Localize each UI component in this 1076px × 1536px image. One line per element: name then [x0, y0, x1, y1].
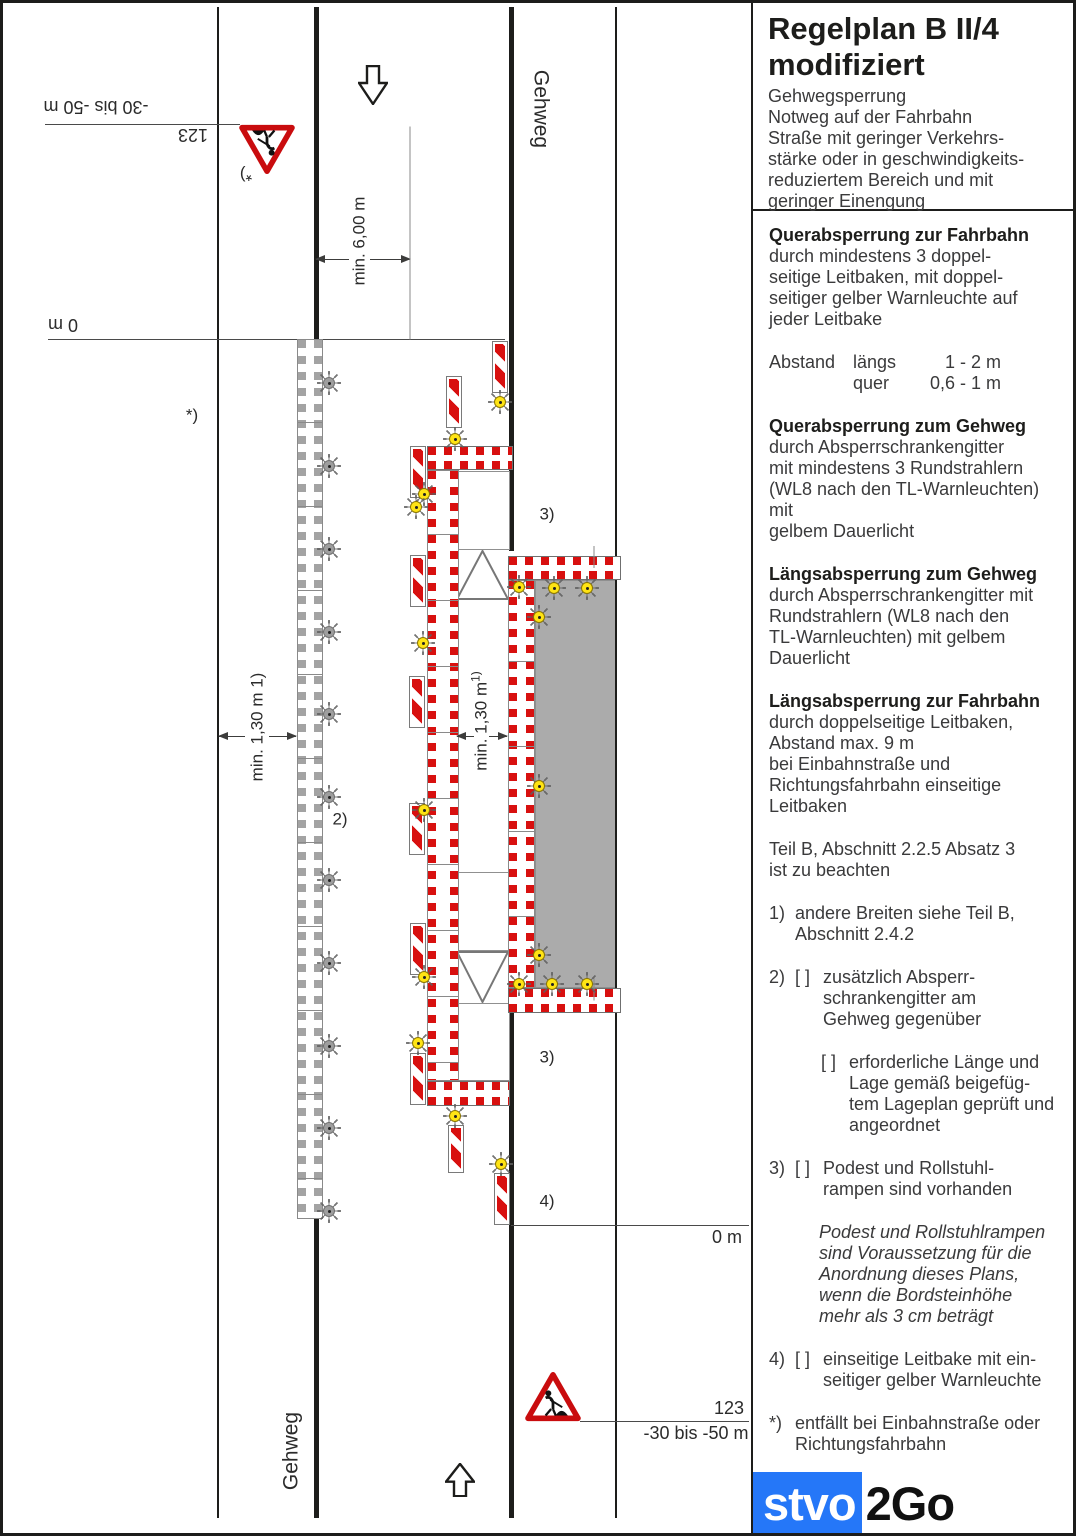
light-disc: [323, 377, 335, 389]
note-section: Querabsperrung zur Fahrbahndurch mindest…: [769, 225, 1067, 330]
warning-light-gray-icon: [317, 537, 341, 561]
curb-left-lower-line: [314, 1219, 319, 1518]
leitbake: [492, 341, 508, 393]
regelplan-page: -30 bis -50 m123*)0 m*)min. 6,00 mmin. 1…: [0, 0, 1076, 1536]
curb-left-upper-line: [314, 7, 319, 340]
light-disc: [323, 1122, 335, 1134]
approach-dim-line-top: [45, 124, 240, 125]
light-disc: [323, 1205, 335, 1217]
ladder-segment-divider: [298, 506, 322, 507]
ladder-segment-divider: [298, 1094, 322, 1095]
checkbox-brackets: [ ]: [795, 1158, 823, 1200]
ladder-segment-divider: [298, 1010, 322, 1011]
footnote-3-label-bottom: 3): [539, 1049, 554, 1066]
warning-light-gray-icon: [317, 454, 341, 478]
warning-light-yellow-icon: [527, 605, 551, 629]
construction-work-sign-123: [525, 1372, 581, 1422]
road-width-dim-label: min. 6,00 m: [351, 197, 368, 286]
text-line: mehr als 3 cm beträgt: [819, 1306, 1067, 1327]
barrier-rail: [298, 340, 306, 1218]
ladder-segment-divider: [428, 996, 458, 997]
distance-table-cell: längs: [853, 352, 915, 373]
light-disc: [581, 582, 593, 594]
text-line: seitiger gelber Warnleuchte auf: [769, 288, 1067, 309]
text-line: (WL8 nach den TL-Warnleuchten) mit: [769, 479, 1067, 521]
text-line: Leitbaken: [769, 796, 1067, 817]
ramp-cell-bottom: [455, 1003, 510, 1081]
text-line: Lage gemäß beigefüg-: [849, 1073, 1054, 1094]
light-disc: [548, 582, 560, 594]
text-line: angeordnet: [849, 1115, 1054, 1136]
light-disc: [323, 874, 335, 886]
text-line: durch doppelseitige Leitbaken,: [769, 712, 1067, 733]
light-disc: [449, 1110, 461, 1122]
section-heading: Querabsperrung zum Gehweg: [769, 416, 1067, 437]
item-text: einseitige Leitbake mit ein-seitiger gel…: [823, 1349, 1041, 1391]
notweg-dim-outer-left: [219, 736, 245, 737]
note-section: 2)[ ]zusätzlich Absperr-schrankengitter …: [769, 967, 1067, 1030]
road-width-dim-left: [316, 259, 349, 260]
warning-light-yellow-icon: [507, 575, 531, 599]
warning-light-yellow-icon: [527, 943, 551, 967]
leitbake-stripes: [413, 558, 423, 604]
sign-number-label-top: 123: [178, 126, 208, 144]
longitudinal-barrier-roadside: [427, 470, 459, 1081]
light-disc: [412, 1037, 424, 1049]
distance-table-cell: [769, 373, 853, 394]
road-edge-right-line: [615, 7, 617, 1518]
light-disc: [323, 543, 335, 555]
station-zero-line-top: [48, 339, 505, 340]
subtitle: GehwegsperrungNotweg auf der FahrbahnStr…: [768, 86, 1063, 212]
text-line: Richtungsfahrbahn einseitige: [769, 775, 1067, 796]
notweg-dim-inner-right: [489, 736, 507, 737]
item-text: andere Breiten siehe Teil B,Abschnitt 2.…: [795, 903, 1015, 945]
warning-light-gray-icon: [317, 951, 341, 975]
subtitle-line: Gehwegsperrung: [768, 86, 1063, 107]
warning-light-yellow-icon: [443, 427, 467, 451]
ladder-segment-divider: [509, 746, 534, 747]
warning-light-yellow-icon: [575, 576, 599, 600]
text-line: TL-Warnleuchten) mit gelbem: [769, 627, 1067, 648]
light-disc: [546, 978, 558, 990]
ramp-cell-middle: [455, 872, 510, 951]
logo-text-blue: stvo: [753, 1472, 862, 1533]
warning-light-gray-icon: [317, 371, 341, 395]
ramp-triangle-up: [456, 550, 509, 600]
light-disc: [581, 978, 593, 990]
text-line: einseitige Leitbake mit ein-: [823, 1349, 1041, 1370]
subtitle-line: Straße mit geringer Verkehrs-: [768, 128, 1063, 149]
text-line: Rundstrahlern (WL8 nach den: [769, 606, 1067, 627]
title-line-2: modifiziert: [768, 47, 925, 82]
approach-dim-line-bottom: [580, 1421, 749, 1422]
light-disc: [533, 780, 545, 792]
leitbake-stripes: [451, 1128, 461, 1170]
ladder-segment-divider: [509, 916, 534, 917]
item-text: erforderliche Länge undLage gemäß beigef…: [849, 1052, 1054, 1136]
item-marker: 2): [769, 967, 795, 1030]
sign-number-label-bottom: 123: [714, 1399, 744, 1417]
light-disc: [513, 978, 525, 990]
note-section: Querabsperrung zum Gehwegdurch Absperrsc…: [769, 416, 1067, 542]
warning-light-yellow-icon: [542, 576, 566, 600]
footnote-3-label-top: 3): [539, 506, 554, 523]
notweg-dim-outer-right: [269, 736, 296, 737]
light-disc: [323, 957, 335, 969]
distance-table-cell: Abstand: [769, 352, 853, 373]
distance-table: Abstandlängs1 - 2 mquer0,6 - 1 m: [769, 352, 1067, 394]
light-disc: [449, 433, 461, 445]
ladder-segment-divider: [298, 422, 322, 423]
note-section: 3)[ ]Podest und Rollstuhl-rampen sind vo…: [769, 1158, 1067, 1200]
text-line: rampen sind vorhanden: [823, 1179, 1012, 1200]
warning-light-yellow-icon: [489, 1152, 513, 1176]
text-line: durch Absperrschrankengitter mit: [769, 585, 1067, 606]
ladder-segment-divider: [428, 732, 458, 733]
subtitle-line: geringer Einengung: [768, 191, 1063, 212]
subtitle-line: Notweg auf der Fahrbahn: [768, 107, 1063, 128]
light-disc: [418, 804, 430, 816]
text-line: Abschnitt 2.4.2: [795, 924, 1015, 945]
text-line: entfällt bei Einbahnstraße oder: [795, 1413, 1040, 1434]
text-line: seitiger gelber Warnleuchte: [823, 1370, 1041, 1391]
distance-table-cell: 0,6 - 1 m: [915, 373, 1001, 394]
note-section: Teil B, Abschnitt 2.2.5 Absatz 3ist zu b…: [769, 839, 1067, 881]
section-heading: Querabsperrung zur Fahrbahn: [769, 225, 1067, 246]
warning-light-yellow-icon: [575, 972, 599, 996]
note-section: *)entfällt bei Einbahnstraße oderRichtun…: [769, 1413, 1067, 1455]
footnote-star-label: *): [186, 407, 198, 424]
text-line: Teil B, Abschnitt 2.2.5 Absatz 3: [769, 839, 1067, 860]
warning-light-yellow-icon: [443, 1104, 467, 1128]
ladder-segment-divider: [428, 1062, 458, 1063]
leitbake-stripes: [412, 679, 422, 725]
barrier-rail: [450, 471, 458, 1080]
ramp-cell-top: [455, 471, 510, 550]
road-edge-left-line: [217, 7, 219, 1518]
light-disc: [533, 611, 545, 623]
ladder-segment-divider: [428, 864, 458, 865]
text-line: Dauerlicht: [769, 648, 1067, 669]
text-line: Podest und Rollstuhlrampen: [819, 1222, 1067, 1243]
light-disc: [323, 708, 335, 720]
traffic-plan-diagram: -30 bis -50 m123*)0 m*)min. 6,00 mmin. 1…: [3, 3, 751, 1533]
leitbake: [410, 555, 426, 607]
light-disc: [513, 581, 525, 593]
text-line: durch mindestens 3 doppel-: [769, 246, 1067, 267]
notweg-width-dim-label-left: min. 1,30 m 1): [249, 673, 266, 782]
distance-table-cell: quer: [853, 373, 915, 394]
item-text: Podest und Rollstuhl-rampen sind vorhand…: [823, 1158, 1012, 1200]
footnote-4-label: 4): [539, 1193, 554, 1210]
warning-light-yellow-icon: [404, 495, 428, 519]
text-line: jeder Leitbake: [769, 309, 1067, 330]
text-line: Gehweg gegenüber: [823, 1009, 981, 1030]
checkbox-brackets: [ ]: [821, 1052, 849, 1136]
item-marker: 4): [769, 1349, 795, 1391]
warning-light-yellow-icon: [527, 774, 551, 798]
item-marker: 3): [769, 1158, 795, 1200]
ramp-triangle-down: [456, 951, 509, 1003]
text-line: erforderliche Länge und: [849, 1052, 1054, 1073]
text-line: ist zu beachten: [769, 860, 1067, 881]
warning-light-yellow-icon: [412, 798, 436, 822]
light-disc: [533, 949, 545, 961]
item-marker: 1): [769, 903, 795, 945]
distance-table-cell: 1 - 2 m: [915, 352, 1001, 373]
leitbake: [494, 1173, 510, 1225]
notweg-width-dim-label-right: min. 1,30 m1): [471, 671, 490, 770]
text-line: wenn die Bordsteinhöhe: [819, 1285, 1067, 1306]
text-line: andere Breiten siehe Teil B,: [795, 903, 1015, 924]
ladder-segment-divider: [298, 590, 322, 591]
light-disc: [323, 1040, 335, 1052]
note-section: 4)[ ]einseitige Leitbake mit ein-seitige…: [769, 1349, 1067, 1391]
leitbake: [410, 1053, 426, 1105]
text-line: bei Einbahnstraße und: [769, 754, 1067, 775]
barrier-panel-divider-top: [594, 546, 595, 568]
warning-light-gray-icon: [317, 702, 341, 726]
note-section: [ ]erforderliche Länge undLage gemäß bei…: [795, 1052, 1067, 1136]
page-title: Regelplan B II/4modifiziert: [768, 11, 1063, 83]
leitbake-stripes: [497, 1176, 507, 1222]
light-disc: [323, 460, 335, 472]
section-heading: Längsabsperrung zum Gehweg: [769, 564, 1067, 585]
light-disc: [495, 1158, 507, 1170]
item-text: zusätzlich Absperr-schrankengitter amGeh…: [823, 967, 981, 1030]
text-line: sind Voraussetzung für die: [819, 1243, 1067, 1264]
ladder-segment-divider: [428, 666, 458, 667]
direction-arrow-up-icon: [445, 1463, 475, 1497]
light-disc: [494, 396, 506, 408]
sidewalk-label-bottom: Gehweg: [281, 1412, 302, 1490]
leitbake: [448, 1125, 464, 1173]
warning-light-yellow-icon: [412, 965, 436, 989]
ladder-segment-divider: [428, 600, 458, 601]
text-line: schrankengitter am: [823, 988, 981, 1009]
sidewalk-label-top: Gehweg: [531, 70, 552, 148]
warning-light-gray-icon: [317, 785, 341, 809]
cross-barrier-sidewalk-bottom: [427, 1081, 510, 1106]
note-section: Podest und Rollstuhlrampensind Vorausset…: [819, 1222, 1067, 1327]
info-panel: Regelplan B II/4modifiziert Gehwegsperru…: [751, 3, 1073, 1533]
light-disc: [323, 791, 335, 803]
item-marker: [795, 1052, 821, 1136]
text-line: Anordnung dieses Plans,: [819, 1264, 1067, 1285]
text-line: durch Absperrschrankengitter: [769, 437, 1067, 458]
ladder-segment-divider: [428, 534, 458, 535]
item-text: entfällt bei Einbahnstraße oderRichtungs…: [795, 1413, 1040, 1455]
text-line: gelbem Dauerlicht: [769, 521, 1067, 542]
warning-light-yellow-icon: [488, 390, 512, 414]
note-section: Längsabsperrung zum Gehwegdurch Absperrs…: [769, 564, 1067, 669]
ladder-segment-divider: [298, 926, 322, 927]
warning-light-yellow-icon: [507, 972, 531, 996]
note-section: Längsabsperrung zur Fahrbahndurch doppel…: [769, 691, 1067, 817]
cross-barrier-sidewalk-top: [427, 446, 513, 470]
subtitle-line: reduziertem Bereich und mit: [768, 170, 1063, 191]
text-line: Abstand max. 9 m: [769, 733, 1067, 754]
title-line-1: Regelplan B II/4: [768, 11, 999, 46]
dimension-extension-line: [410, 127, 411, 340]
warning-light-yellow-icon: [406, 1031, 430, 1055]
checkbox-brackets: [ ]: [795, 1349, 823, 1391]
note-section: 1)andere Breiten siehe Teil B,Abschnitt …: [769, 903, 1067, 945]
leitbake-stripes: [495, 344, 505, 390]
ladder-segment-divider: [428, 930, 458, 931]
warning-light-gray-icon: [317, 1199, 341, 1223]
stvo2go-logo: stvo2Go: [753, 1472, 958, 1533]
warning-light-gray-icon: [317, 620, 341, 644]
ladder-segment-divider: [509, 831, 534, 832]
text-line: Podest und Rollstuhl-: [823, 1158, 1012, 1179]
leitbake: [446, 376, 462, 428]
leitbake-stripes: [449, 379, 459, 425]
ladder-segment-divider: [298, 842, 322, 843]
text-line: zusätzlich Absperr-: [823, 967, 981, 988]
warning-light-yellow-icon: [540, 972, 564, 996]
warning-light-gray-icon: [317, 1116, 341, 1140]
ladder-segment-divider: [298, 1178, 322, 1179]
footnote-star-at-sign: *): [240, 167, 252, 184]
ladder-segment-divider: [298, 758, 322, 759]
light-disc: [323, 626, 335, 638]
text-line: mit mindestens 3 Rundstrahlern: [769, 458, 1067, 479]
light-disc: [418, 971, 430, 983]
approach-distance-label-top: -30 bis -50 m: [43, 98, 148, 116]
title-block: Regelplan B II/4modifiziert Gehwegsperru…: [753, 3, 1073, 211]
station-zero-label-bottom: 0 m: [712, 1228, 742, 1246]
subtitle-line: stärke oder in geschwindigkeits-: [768, 149, 1063, 170]
warning-light-gray-icon: [317, 868, 341, 892]
road-width-dim-right: [370, 259, 410, 260]
barrier-rail: [509, 581, 517, 987]
light-disc: [417, 637, 429, 649]
text-line: Richtungsfahrbahn: [795, 1434, 1040, 1455]
logo-text-black: 2Go: [862, 1472, 958, 1533]
text-line: tem Lageplan geprüft und: [849, 1094, 1054, 1115]
approach-distance-label-bottom: -30 bis -50 m: [643, 1424, 748, 1442]
ladder-segment-divider: [509, 661, 534, 662]
item-marker: *): [769, 1413, 795, 1455]
ladder-segment-divider: [298, 674, 322, 675]
warning-light-gray-icon: [317, 1034, 341, 1058]
leitbake: [409, 676, 425, 728]
light-disc: [410, 501, 422, 513]
warning-light-yellow-icon: [411, 631, 435, 655]
text-line: seitige Leitbaken, mit doppel-: [769, 267, 1067, 288]
section-heading: Längsabsperrung zur Fahrbahn: [769, 691, 1067, 712]
notes-column: Querabsperrung zur Fahrbahndurch mindest…: [753, 211, 1073, 1455]
footnote-2-label: 2): [332, 811, 347, 828]
station-zero-line-bottom: [511, 1225, 749, 1226]
checkbox-brackets: [ ]: [795, 967, 823, 1030]
station-zero-label-top: 0 m: [48, 316, 78, 334]
direction-arrow-down-icon: [358, 65, 388, 105]
leitbake-stripes: [413, 1056, 423, 1102]
